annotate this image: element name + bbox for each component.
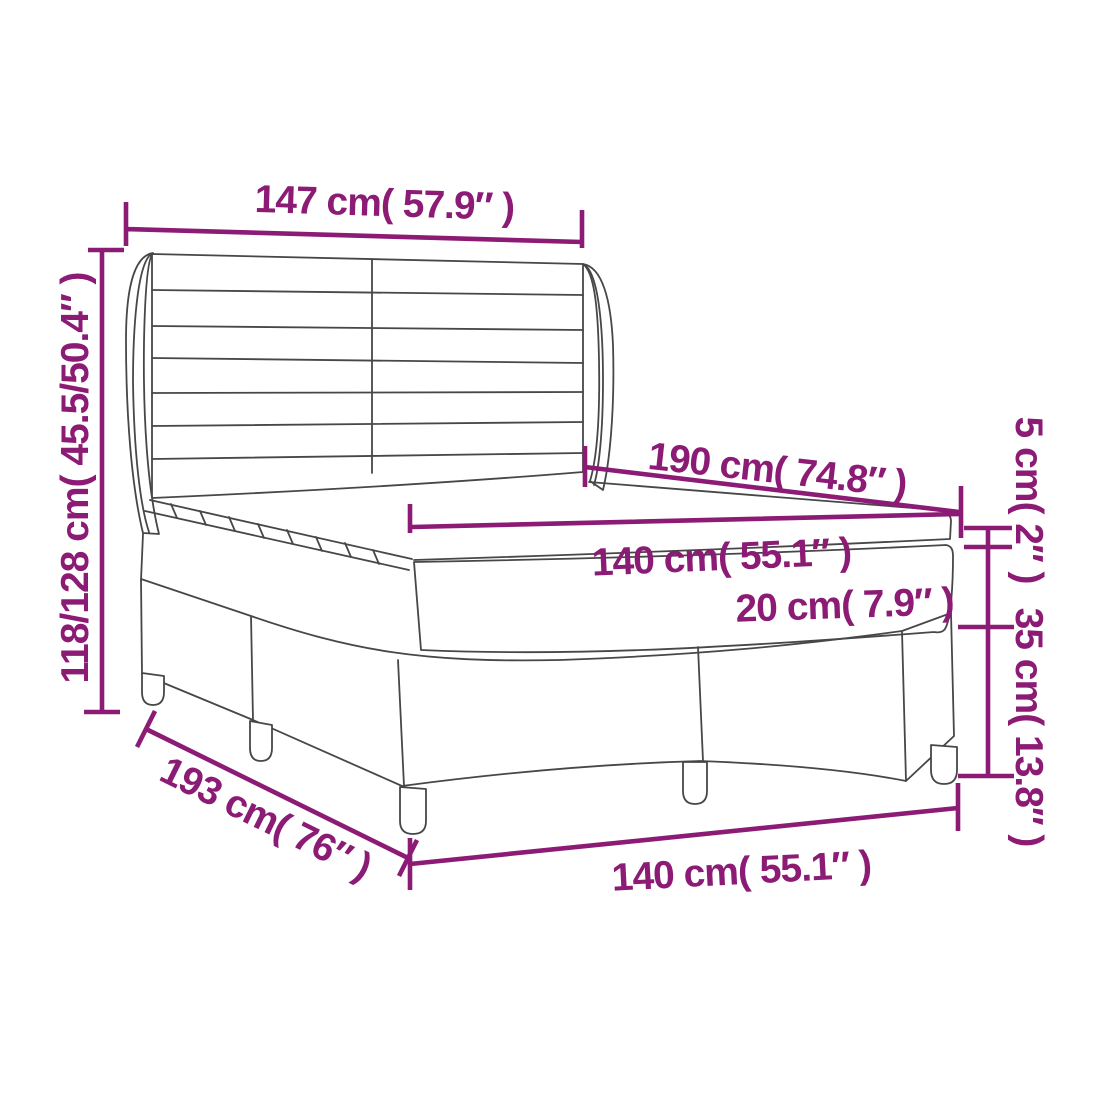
dim-headboard-width: 147 cm( 57.9″ ) — [126, 178, 582, 248]
dim-frame-length: 193 cm( 76″ ) — [137, 711, 417, 889]
dim-frame-width: 140 cm( 55.1″ ) — [410, 783, 958, 900]
bed-leg-front-middle-right — [683, 762, 707, 804]
bed-leg-front-left — [250, 721, 272, 761]
bed-leg-rear-left — [142, 673, 164, 705]
bed-leg-front-right — [931, 745, 957, 784]
bed-leg-front-middle-left — [400, 787, 426, 834]
dim-label-mattress-height: 20 cm( 7.9″ ) — [735, 580, 955, 631]
bed-dimension-diagram: 147 cm( 57.9″ ) 118/128 cm( 45.5/50.4″ )… — [0, 0, 1100, 1100]
head-rail-stitching — [171, 504, 379, 564]
head-rail — [141, 500, 412, 580]
dim-mattress-height: 20 cm( 7.9″ ) — [735, 580, 955, 631]
dim-label-frame-length: 193 cm( 76″ ) — [153, 749, 377, 889]
dimension-diagram-page: 147 cm( 57.9″ ) 118/128 cm( 45.5/50.4″ )… — [0, 0, 1100, 1100]
dim-label-headboard-width: 147 cm( 57.9″ ) — [254, 178, 515, 229]
dim-label-overall-height: 118/128 cm( 45.5/50.4″ ) — [54, 272, 97, 683]
base-seams — [398, 647, 703, 786]
dim-label-mattress-length: 190 cm( 74.8″ ) — [646, 435, 909, 506]
dimension-line — [958, 528, 1014, 776]
dim-label-topper-height: 5 cm( 2″ ) — [1007, 417, 1050, 584]
dim-right-heights: 5 cm( 2″ ) 35 cm( 13.8″ ) — [958, 417, 1050, 847]
dim-mattress-length: 190 cm( 74.8″ ) — [585, 435, 959, 512]
dim-label-base-height: 35 cm( 13.8″ ) — [1007, 608, 1050, 847]
dim-overall-height: 118/128 cm( 45.5/50.4″ ) — [54, 250, 124, 712]
dim-label-frame-width: 140 cm( 55.1″ ) — [611, 843, 872, 900]
dim-label-mattress-width: 140 cm( 55.1″ ) — [591, 530, 852, 584]
